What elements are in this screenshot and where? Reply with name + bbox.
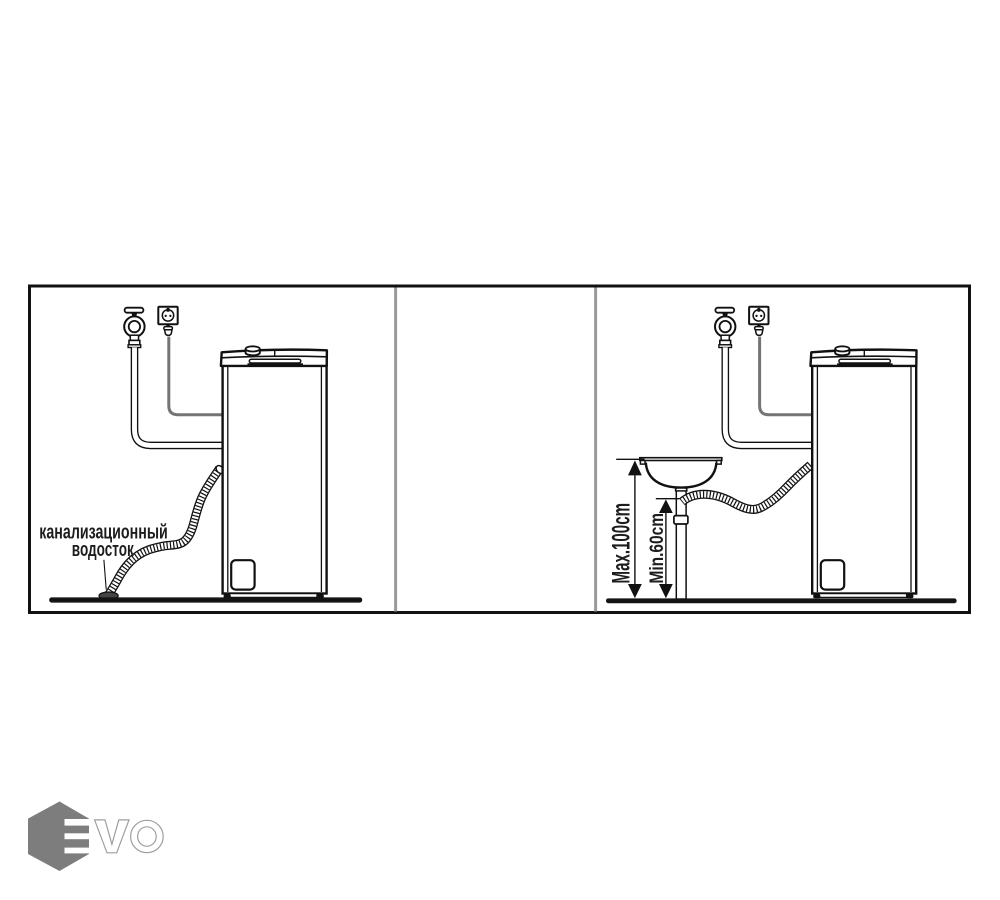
svg-text:Max.100cm: Max.100cm [608, 503, 636, 584]
svg-text:Min.60cm: Min.60cm [647, 513, 668, 584]
svg-text:водосток: водосток [72, 538, 134, 561]
